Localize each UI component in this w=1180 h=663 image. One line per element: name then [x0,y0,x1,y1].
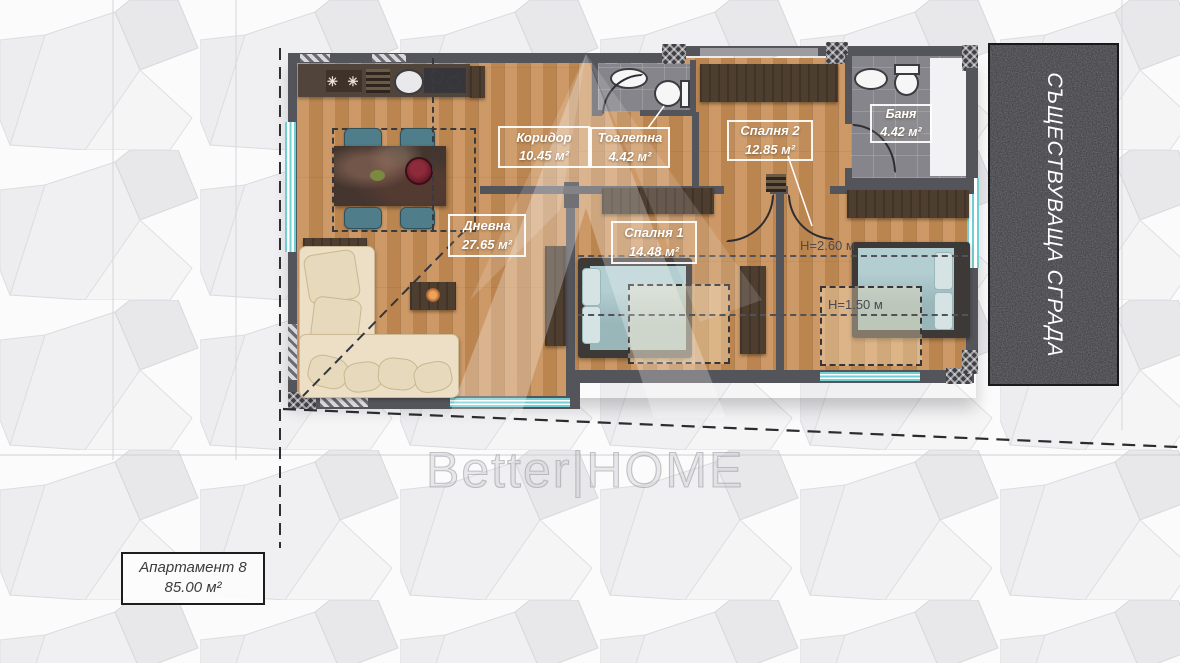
ceiling-height-label-1: Н=2.60 м [800,238,855,253]
room-area: 12.85 м² [733,141,807,159]
bedroom1-bedroom2-wall [776,192,784,374]
room-label-bedroom2: Спалня 2 12.85 м² [727,120,813,161]
table-bowl [405,157,433,185]
existing-building-label: СЪЩЕСТВУВАЩА СГРАДА [1042,72,1066,357]
kitchen-sink-symbol [394,69,424,95]
bedroom1-pillow-1 [582,268,601,306]
room-name: Тоалетна [596,129,664,147]
toilet-bottom-wall-a [592,110,602,116]
room-area: 10.45 м² [504,147,584,165]
toilet-right-wall [690,60,696,114]
apartment-area: 85.00 м² [129,578,257,598]
living-bedroom1-wall [566,186,575,398]
room-area: 4.42 м² [876,124,926,142]
living-bottom-window [450,398,576,407]
apartment-info-box: Апартамент 8 85.00 м² [121,552,265,605]
radiator [766,174,786,192]
wall-junction-1 [662,44,686,64]
bath-left-wall-a [845,55,852,124]
bedroom2-west-wall [692,112,699,194]
left-window [285,122,296,252]
right-wall-upper [966,68,978,178]
bedroom2-top-wardrobe [700,64,838,102]
media-cabinet [545,246,566,346]
bath-sink-symbol [854,68,888,90]
top-wall-left [288,53,684,63]
right-wall-junction-bottom [962,350,978,374]
room-label-toilet: Тоалетна 4.42 м² [590,127,670,168]
bedroom1-side-wardrobe [740,266,766,354]
existing-building-block: СЪЩЕСТВУВАЩА СГРАДА [988,43,1119,386]
toilet-room-wc-symbol [654,80,682,107]
room-label-living: Дневна 27.65 м² [448,214,526,257]
brand-watermark: Better|HOME [426,441,744,499]
toilet-bottom-wall-b [640,110,696,116]
room-area: 27.65 м² [454,236,520,254]
room-label-bedroom1: Спалня 1 14.48 м² [611,221,697,264]
room-label-bath: Баня 4.42 м² [870,104,932,143]
bedroom1-top-wardrobe [602,188,714,214]
apartment-title: Апартамент 8 [129,558,257,578]
toilet-left-wall [592,60,598,114]
room-name: Баня [876,106,926,124]
bottom-wall-hatch [320,398,368,407]
room-name: Спалня 2 [733,122,807,140]
bedroom2-pillow-2 [934,292,953,330]
bedroom2-mid-wardrobe [847,190,969,218]
bedroom2-pillow-1 [934,252,953,290]
kitchen-tall-cabinet [470,66,485,98]
kitchen-divider-dashed [432,58,434,230]
bedroom2-bottom-window [820,372,920,381]
bath-bottom-wall [845,178,974,186]
room-name: Спалня 1 [617,224,691,242]
top-wall-hatch-2 [372,54,406,62]
bath-wc-tank [894,64,920,75]
room-area: 4.42 м² [596,148,664,166]
toilet-room-wc-tank [680,80,690,108]
top-wall-light-seg [700,48,818,56]
hob-burner-2 [447,76,460,89]
room-label-corridor: Коридор 10.45 м² [498,126,590,168]
fireplace-glow [426,288,440,302]
dining-chair-4 [400,207,435,229]
room-name: Коридор [504,129,584,147]
room-name: Дневна [454,217,520,235]
bedroom1-pillow-2 [582,306,601,344]
floor-plan-page: ✳ ✳ ✳ [0,0,1180,663]
left-wall-hatch [288,324,297,380]
height-level-line-2 [578,314,968,316]
kitchen-vent-panel [366,69,390,93]
bedroom1-rug-projection [628,284,730,364]
ceiling-height-label-2: Н=1.50 м [828,297,883,312]
top-wall-hatch-1 [300,54,330,62]
dining-chair-3 [344,207,382,229]
table-decor [370,170,385,181]
room-area: 14.48 м² [617,243,691,261]
